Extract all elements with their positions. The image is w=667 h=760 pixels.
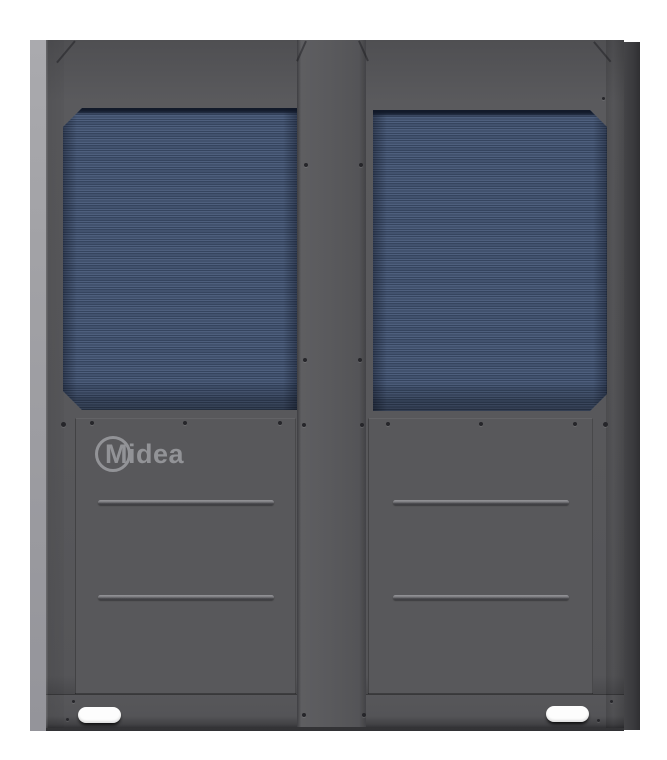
cabinet-right-side-panel (624, 42, 640, 730)
service-panel-left: Midea (75, 418, 296, 694)
screw (358, 358, 362, 362)
screw (304, 163, 308, 167)
screw (360, 423, 364, 427)
screw (386, 422, 390, 426)
screw (602, 97, 605, 100)
panel-groove (98, 595, 274, 600)
screw (573, 422, 577, 426)
front-frame-left (46, 40, 64, 728)
screw (362, 713, 366, 717)
panel-groove (393, 500, 569, 505)
screw (72, 700, 75, 703)
screw (597, 719, 600, 722)
midea-logo-text: Midea (105, 439, 184, 470)
screw (278, 421, 282, 425)
midea-logo: Midea (95, 435, 184, 473)
cabinet-left-side-panel (30, 40, 46, 731)
screw (183, 421, 187, 425)
screw (90, 421, 94, 425)
screw (610, 700, 613, 703)
screw (303, 358, 307, 362)
product-photo: Midea (0, 0, 667, 760)
panel-groove (98, 500, 274, 505)
front-frame-right (606, 40, 624, 728)
lift-slot-left (78, 707, 121, 723)
panel-groove (393, 595, 569, 600)
screw (61, 422, 66, 427)
screw (479, 422, 483, 426)
screw (302, 423, 306, 427)
screw (359, 163, 363, 167)
heat-exchanger-coil-left (63, 108, 297, 410)
center-divider-column (297, 40, 366, 727)
service-panel-right (368, 418, 593, 694)
screw (302, 713, 306, 717)
screw (603, 422, 608, 427)
lift-slot-right (546, 706, 589, 722)
heat-exchanger-coil-right (373, 110, 607, 411)
screw (66, 718, 69, 721)
